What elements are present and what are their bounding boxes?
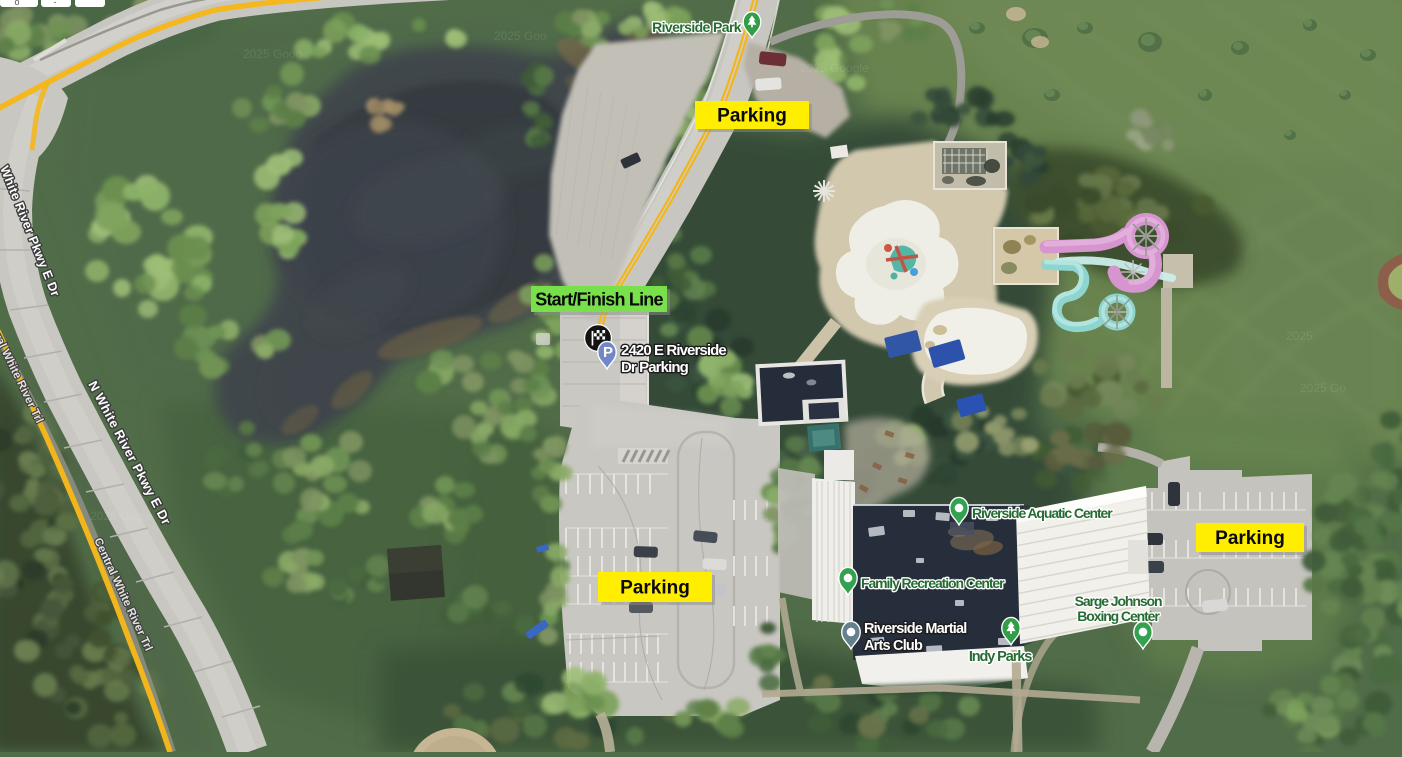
- svg-text:2025 Goog: 2025 Goog: [243, 47, 302, 61]
- svg-text:Riverside Park: Riverside Park: [652, 19, 742, 35]
- svg-text:o: o: [14, 0, 19, 7]
- svg-text:P: P: [603, 344, 613, 361]
- svg-text:2025: 2025: [1286, 329, 1313, 343]
- svg-text:Start/Finish Line: Start/Finish Line: [535, 289, 663, 309]
- svg-text:Arts Club: Arts Club: [864, 638, 923, 654]
- svg-text:Parking: Parking: [620, 578, 690, 599]
- svg-text:Parking: Parking: [1215, 528, 1285, 549]
- svg-text:Indy Parks: Indy Parks: [969, 649, 1032, 665]
- svg-text:2420 E Riverside: 2420 E Riverside: [621, 342, 726, 359]
- svg-text:Boxing Center: Boxing Center: [1077, 608, 1160, 624]
- svg-text:2025 Gogle: 2025 Gogle: [90, 509, 152, 523]
- svg-text:Sarge Johnson: Sarge Johnson: [1075, 593, 1162, 609]
- svg-text:-: -: [54, 0, 57, 7]
- svg-text:Riverside Aquatic Center: Riverside Aquatic Center: [972, 505, 1113, 521]
- svg-text:Family Recreation Center: Family Recreation Center: [861, 575, 1005, 591]
- svg-text:2025 Goo: 2025 Goo: [494, 29, 547, 43]
- svg-text:Riverside Martial: Riverside Martial: [864, 621, 966, 637]
- svg-text:Parking: Parking: [717, 106, 787, 127]
- svg-text:Dr Parking: Dr Parking: [621, 359, 689, 376]
- svg-text:2025 Google: 2025 Google: [800, 61, 869, 75]
- svg-text:2025 Go: 2025 Go: [1300, 381, 1346, 395]
